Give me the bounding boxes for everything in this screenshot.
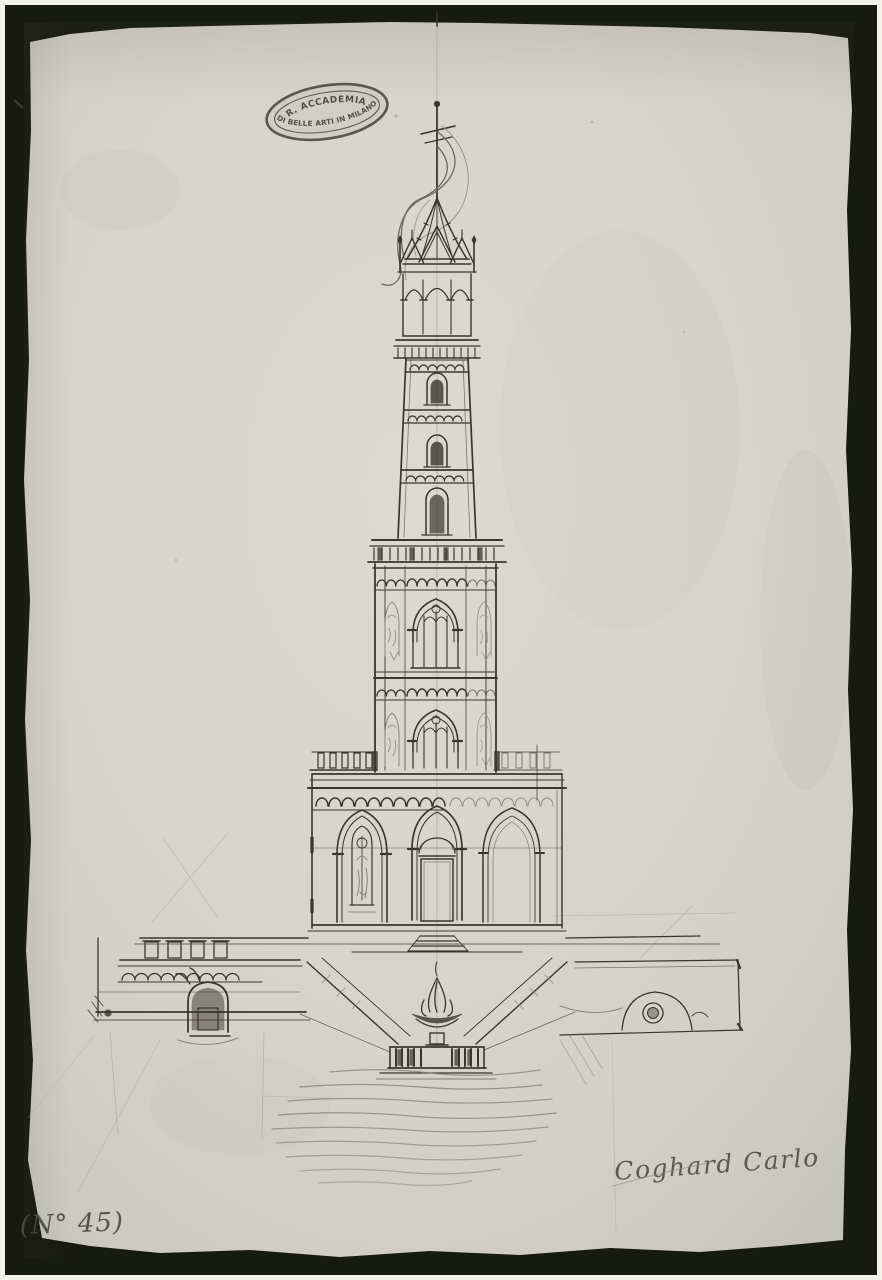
- paper-top-shading: [24, 22, 854, 102]
- scanned-drawing-page: R. ACCADEMIA DI BELLE ARTI IN MILANO Cog…: [0, 0, 882, 1280]
- inventory-number: (N° 45): [19, 1207, 124, 1241]
- drawing-canvas: R. ACCADEMIA DI BELLE ARTI IN MILANO Cog…: [0, 0, 882, 1280]
- paper-left-shading: [24, 22, 70, 1258]
